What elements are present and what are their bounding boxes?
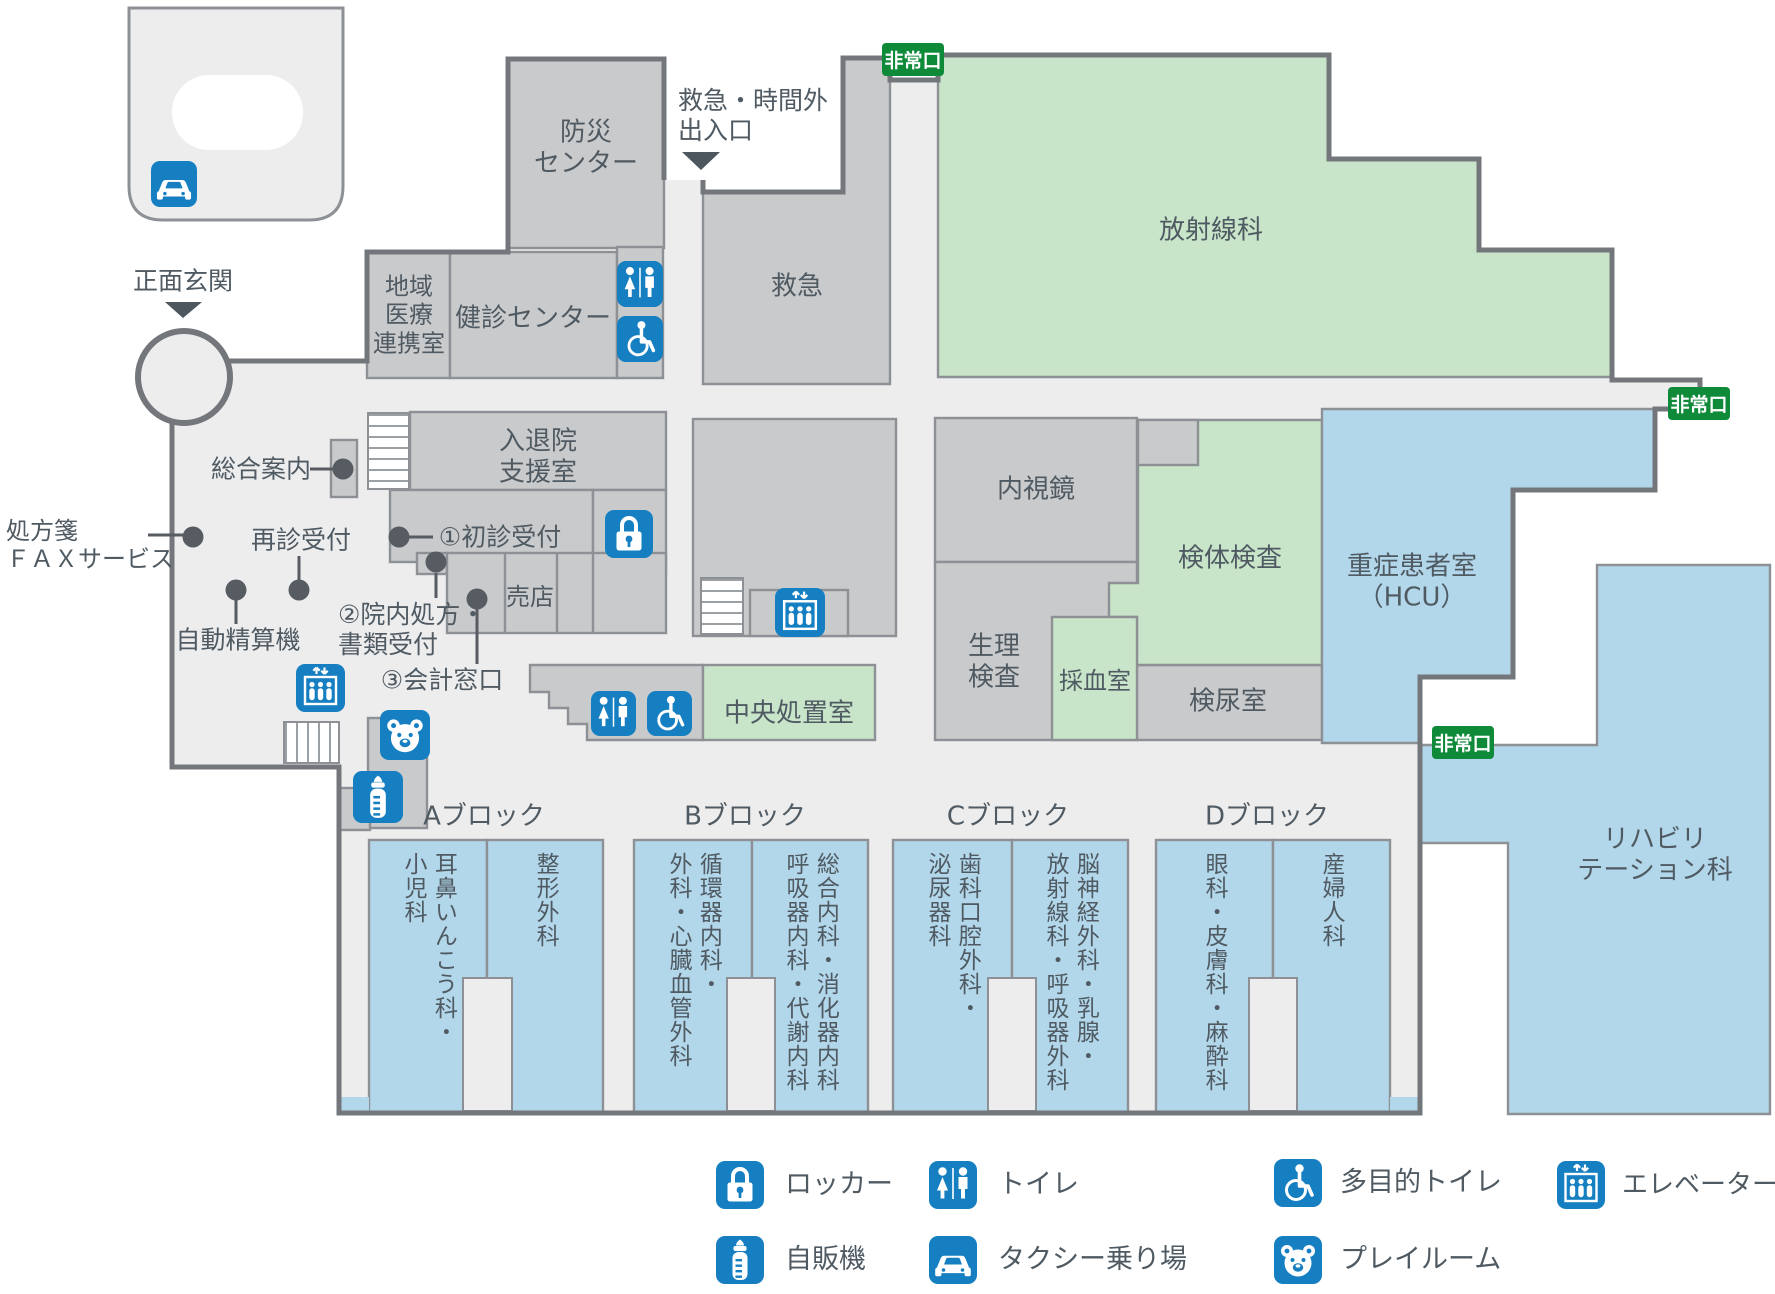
room-label-rehabilitation: リハビリテーション科	[1577, 824, 1732, 885]
legend-label-playroom: プレイルーム	[1340, 1236, 1501, 1284]
room-radiology	[938, 55, 1612, 377]
accessible-toilet-icon	[617, 316, 663, 362]
locker-icon	[716, 1161, 764, 1209]
stairs-icon	[367, 412, 410, 490]
main-entrance-label: 正面玄関	[133, 266, 233, 296]
main-entrance-circle	[138, 331, 230, 423]
legend-label-locker: ロッカー	[785, 1161, 893, 1209]
prescription-reception-label: ②院内処方・書類受付	[338, 600, 485, 659]
stairs-icon	[700, 577, 744, 635]
room-label-urine-test: 検尿室	[1189, 687, 1267, 718]
room-label-radiology: 放射線科	[1159, 216, 1263, 247]
elevator-icon	[296, 664, 345, 712]
information-label: 総合案内	[211, 454, 311, 484]
playroom-icon	[380, 710, 430, 760]
block-a-right-departments: 整形外科	[530, 852, 560, 948]
room-label-checkup-center: 健診センター	[455, 304, 611, 335]
room-label-endoscopy: 内視鏡	[997, 475, 1075, 506]
emergency-entrance-label: 救急・時間外出入口	[678, 86, 828, 145]
legend-label-accessible-toilet: 多目的トイレ	[1340, 1159, 1502, 1207]
toilet-icon	[591, 691, 636, 736]
fax-dot	[183, 527, 204, 548]
vending-machine-icon	[716, 1236, 764, 1284]
room-specimen-notch	[1138, 420, 1198, 465]
block-c-left-departments: 歯科口腔外科・泌尿器科	[922, 852, 983, 1020]
nursing-bottle-icon	[353, 771, 403, 823]
fax-service-label: 処方箋ＦＡＸサービス	[6, 517, 174, 574]
main-entrance-arrow-icon	[165, 302, 202, 318]
legend-label-toilet: トイレ	[998, 1161, 1079, 1209]
room-label-shop: 売店	[506, 583, 554, 611]
cashier-label: ③会計窓口	[381, 665, 503, 695]
legend-label-vending: 自販機	[785, 1236, 866, 1284]
emergency-exit-badge: 非常口	[1668, 387, 1730, 420]
legend-label-elevator: エレベーター	[1622, 1161, 1775, 1209]
elevator-icon	[775, 588, 825, 637]
room-label-specimen-lab: 検体検査	[1178, 544, 1282, 575]
elevator-icon	[1557, 1161, 1605, 1209]
prescription-dot	[426, 552, 447, 573]
revisit-dot	[289, 580, 310, 601]
room-label-emergency: 救急	[771, 272, 823, 303]
toilet-icon	[617, 261, 663, 307]
legend-label-taxi: タクシー乗り場	[998, 1236, 1187, 1284]
first-visit-reception-label: ①初診受付	[439, 522, 561, 552]
toilet-icon	[929, 1161, 977, 1209]
block-c-label: Cブロック	[947, 802, 1069, 833]
room-label-physiology: 生理検査	[968, 631, 1020, 692]
emergency-exit-badge: 非常口	[882, 43, 944, 76]
emergency-exit-badge: 非常口	[1432, 726, 1494, 759]
revisit-reception-label: 再診受付	[251, 525, 351, 555]
room-label-disaster-center: 防災センター	[534, 117, 638, 178]
room-label-admission-support: 入退院支援室	[499, 426, 577, 487]
room-label-regional-medical: 地域医療連携室	[373, 273, 445, 358]
locker-icon	[605, 510, 653, 558]
playroom-icon	[1274, 1236, 1322, 1284]
block-b-right-departments: 総合内科・消化器内科呼吸器内科・代謝内科	[780, 852, 841, 1092]
taxi-stand-icon	[151, 161, 197, 207]
block-d-right-departments: 産婦人科	[1316, 852, 1346, 948]
block-b-left-departments: 循環器内科・外科・心臓血管外科	[663, 852, 724, 1068]
taxi-stand-icon	[929, 1236, 977, 1284]
block-a-label: Aブロック	[423, 802, 545, 833]
hospital-floor-map: 非常口 非常口 非常口 防災センター 地域医療連携室 健診センター 救急 放射線…	[0, 0, 1775, 1294]
block-a-left-departments: 耳鼻いんこう科・小児科	[398, 852, 459, 1044]
block-d-left-departments: 眼科・皮膚科・麻酔科	[1199, 852, 1229, 1092]
payment-machine-dot	[226, 580, 247, 601]
accessible-toilet-icon	[1274, 1159, 1322, 1207]
first-visit-dot	[389, 527, 410, 548]
payment-machine-label: 自動精算機	[175, 625, 300, 655]
stairs-icon	[283, 721, 340, 764]
block-d-label: Dブロック	[1205, 802, 1329, 833]
information-dot	[333, 459, 354, 480]
block-b-label: Bブロック	[684, 802, 806, 833]
room-label-central-treatment: 中央処置室	[724, 699, 854, 730]
accessible-toilet-icon	[647, 691, 692, 736]
emergency-entrance-arrow-icon	[682, 152, 720, 170]
room-label-hcu: 重症患者室（HCU）	[1347, 551, 1477, 612]
block-c-right-departments: 脳神経外科・乳腺・放射線科・呼吸器外科	[1040, 852, 1101, 1092]
room-label-blood-collection: 採血室	[1059, 667, 1131, 695]
